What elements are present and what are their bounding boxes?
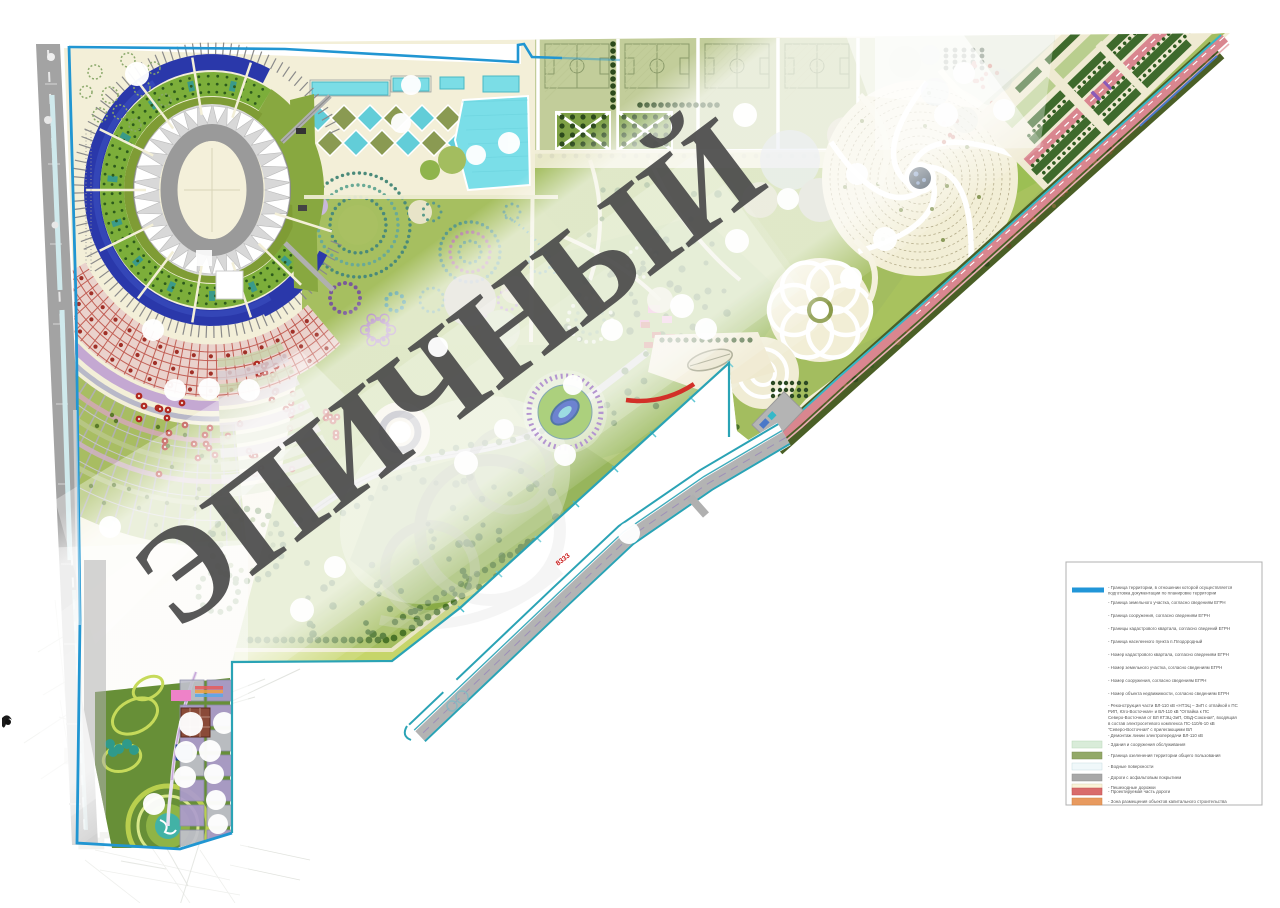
svg-text:- Демонтаж линии электропереда: - Демонтаж линии электропередачи ВЛ-110 … (1108, 733, 1203, 738)
svg-text:- Дороги с асфальтовым покрыти: - Дороги с асфальтовым покрытием (1108, 775, 1181, 780)
svg-text:- Проектируемая часть дороги: - Проектируемая часть дороги (1108, 789, 1171, 794)
svg-text:- Номер земельного участка, со: - Номер земельного участка, согласно све… (1108, 665, 1222, 670)
svg-text:- Граница территории, в отноше: - Граница территории, в отношении которо… (1108, 585, 1233, 590)
svg-text:- Границы кадастрового квартал: - Границы кадастрового квартала, согласн… (1108, 626, 1230, 631)
svg-text:- Граница сооружения, согласно: - Граница сооружения, согласно сведениям… (1108, 613, 1210, 618)
svg-text:- Граница населенного пункта п: - Граница населенного пункта п.Плодородн… (1108, 639, 1203, 644)
svg-text:- Граница земельного участка,: - Граница земельного участка, согласно с… (1108, 600, 1226, 605)
svg-text:- Номер сооружения, согласно с: - Номер сооружения, согласно сведениям Е… (1108, 678, 1206, 683)
svg-text:"Северо-Восточная" с прилегающ: "Северо-Восточная" с прилегающими ВЛ (1108, 727, 1192, 732)
svg-text:- Водные поверхности: - Водные поверхности (1108, 764, 1154, 769)
svg-text:- Зона размещения объектов кап: - Зона размещения объектов капитального … (1108, 799, 1227, 804)
svg-text:- Граница озеленения территори: - Граница озеленения территории общего п… (1108, 753, 1221, 758)
svg-text:подготовка документации по пла: подготовка документации по планировке те… (1108, 591, 1217, 596)
svg-text:- Номер кадастрового квартала,: - Номер кадастрового квартала, согласно … (1108, 652, 1229, 657)
svg-text:- Здания и сооружения обслужив: - Здания и сооружения обслуживания (1108, 742, 1186, 747)
svg-text:РИП, Юго-Восточная» и ВЛ-110 к: РИП, Юго-Восточная» и ВЛ-110 кВ "Отпайка… (1108, 709, 1209, 714)
svg-text:- Реконструкция части ВЛ-110 к: - Реконструкция части ВЛ-110 кВ «НТЭЦ – … (1108, 703, 1238, 708)
svg-text:Северо-Восточная от ВЛ КТЭЦ-Зи: Северо-Восточная от ВЛ КТЭЦ-ЗиП, ОБД-Сою… (1108, 715, 1237, 720)
svg-text:в состав электросетевого компл: в состав электросетевого комплекса ПС-11… (1108, 721, 1215, 726)
svg-text:- Номер объекта недвижимости,: - Номер объекта недвижимости, согласно с… (1108, 691, 1229, 696)
